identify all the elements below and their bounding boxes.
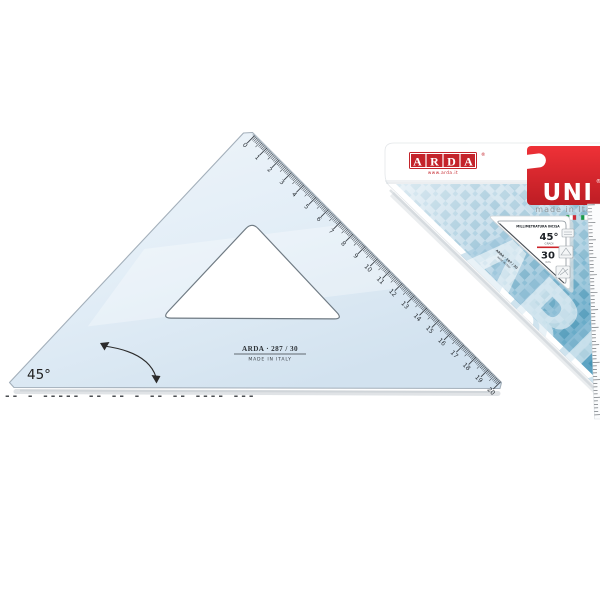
spec-angle-unit: GRADI bbox=[545, 242, 554, 246]
flag-red bbox=[573, 215, 576, 220]
spec-heading: MILLIMETRATURA INCISA bbox=[516, 225, 560, 229]
arda-website: www.arda.it bbox=[428, 170, 458, 175]
uni-registered-mark: ® bbox=[596, 178, 600, 185]
flag-green bbox=[581, 215, 584, 220]
arda-logo-letter: A bbox=[464, 155, 473, 169]
spec-length-unit: Cm bbox=[545, 260, 550, 264]
arda-logo-letter: D bbox=[447, 155, 456, 169]
flag-white bbox=[584, 215, 587, 220]
angle-label: 45° bbox=[27, 367, 51, 383]
product-code-label: ARDA · 287 / 30 bbox=[242, 345, 298, 353]
registered-mark: ® bbox=[481, 151, 486, 158]
spec-divider bbox=[537, 247, 561, 249]
product-photo: ARDA ARDA A R D A ® www.arda.it UNI bbox=[0, 0, 600, 600]
arda-logo-letter: A bbox=[413, 155, 422, 169]
pictogram-icon bbox=[562, 229, 574, 237]
arda-logo-letter: R bbox=[430, 155, 439, 169]
made-in-italy-label: MADE IN ITALY bbox=[248, 357, 291, 363]
uni-label: UNI bbox=[543, 180, 594, 206]
bottom-caption: -- - ----- -- -- - -- -- ---- --- bbox=[4, 390, 256, 403]
scene: ARDA ARDA A R D A ® www.arda.it UNI bbox=[0, 0, 600, 600]
